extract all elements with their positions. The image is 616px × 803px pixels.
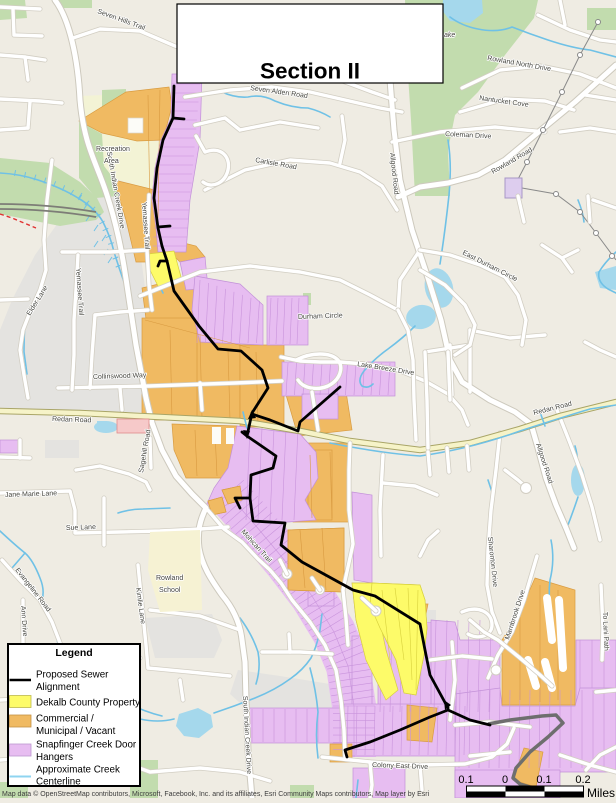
svg-text:Map data © OpenStreetMap contr: Map data © OpenStreetMap contributors, M… bbox=[2, 790, 430, 798]
svg-text:ake: ake bbox=[444, 32, 455, 39]
svg-text:0.2: 0.2 bbox=[575, 774, 590, 786]
svg-text:Legend: Legend bbox=[55, 647, 92, 659]
svg-text:Miles: Miles bbox=[587, 786, 615, 798]
svg-text:Dekalb County Property: Dekalb County Property bbox=[36, 698, 140, 709]
svg-text:0: 0 bbox=[502, 774, 508, 786]
svg-text:Hangers: Hangers bbox=[36, 752, 73, 763]
svg-text:Section II: Section II bbox=[260, 59, 360, 84]
svg-text:To Lani Path: To Lani Path bbox=[601, 612, 609, 651]
svg-text:0.1: 0.1 bbox=[536, 774, 551, 786]
svg-text:Rowland: Rowland bbox=[156, 575, 183, 582]
svg-text:0.1: 0.1 bbox=[458, 774, 473, 786]
svg-text:Commercial /: Commercial / bbox=[36, 714, 94, 725]
svg-text:Centerline: Centerline bbox=[36, 777, 81, 788]
svg-text:Alignment: Alignment bbox=[36, 682, 80, 693]
svg-text:Area: Area bbox=[104, 158, 119, 165]
svg-text:Redan Road: Redan Road bbox=[52, 416, 92, 424]
svg-text:School: School bbox=[159, 587, 181, 594]
svg-text:Sue Lane: Sue Lane bbox=[66, 524, 96, 532]
svg-text:Municipal / Vacant: Municipal / Vacant bbox=[36, 726, 116, 737]
svg-text:Proposed Sewer: Proposed Sewer bbox=[36, 670, 109, 681]
svg-text:Approximate Creek: Approximate Creek bbox=[36, 765, 120, 776]
svg-text:Snapfinger Creek Door: Snapfinger Creek Door bbox=[36, 740, 137, 751]
svg-text:Recreation: Recreation bbox=[96, 146, 130, 153]
